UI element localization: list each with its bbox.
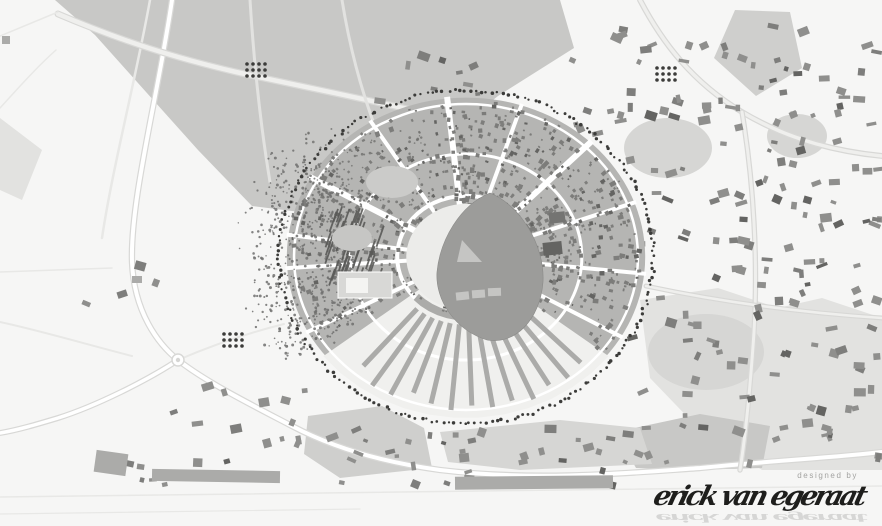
- stipple-tree: [285, 287, 287, 289]
- stipple-tree: [287, 326, 290, 329]
- ring-tree-dot: [448, 421, 450, 423]
- ring-tree-dot: [635, 322, 638, 325]
- outer-tree: [325, 144, 327, 146]
- stipple-tree: [278, 327, 281, 330]
- stipple-tree: [301, 249, 304, 252]
- ring-tree-dot: [279, 228, 282, 231]
- stipple-tree: [305, 189, 307, 191]
- stipple-tree: [323, 314, 326, 317]
- stipple-tree: [291, 260, 294, 263]
- stipple-tree: [327, 193, 329, 195]
- ring-tree-dot: [651, 250, 653, 252]
- stipple-tree: [270, 154, 272, 156]
- outer-tree: [343, 169, 345, 171]
- building: [475, 92, 480, 96]
- stipple-tree: [267, 211, 269, 213]
- ring-tree-dot: [559, 400, 562, 403]
- stipple-tree: [346, 317, 348, 319]
- city-building: [515, 115, 518, 117]
- building: [839, 95, 851, 98]
- stipple-tree: [281, 232, 283, 234]
- outer-tree: [383, 158, 385, 160]
- signature: erick van egeraat: [650, 480, 871, 512]
- ring-tree-dot: [280, 288, 282, 290]
- stipple-tree: [300, 291, 302, 293]
- ring-tree-dot: [440, 90, 443, 93]
- outer-tree: [399, 130, 401, 132]
- stipple-tree: [301, 203, 304, 206]
- stipple-tree: [320, 292, 323, 295]
- stipple-tree: [287, 352, 289, 354]
- stipple-tree: [310, 292, 313, 295]
- ring-tree-dot: [541, 406, 544, 409]
- stipple-tree: [269, 231, 271, 233]
- ring-tree-dot: [283, 213, 286, 216]
- city-building: [455, 125, 457, 127]
- ring-tree-dot: [300, 175, 304, 179]
- stipple-tree: [278, 241, 280, 243]
- ring-tree-dot: [531, 413, 534, 416]
- city-building: [579, 254, 583, 258]
- ring-tree-dot: [567, 397, 570, 400]
- tree-grid-dot: [240, 344, 244, 348]
- outer-tree: [305, 191, 306, 192]
- stipple-tree: [305, 257, 308, 260]
- outer-tree: [408, 140, 411, 143]
- stipple-tree: [238, 222, 239, 223]
- ring-tree-dot: [276, 257, 279, 260]
- stipple-tree: [277, 217, 279, 219]
- city-building: [577, 272, 579, 275]
- ring-tree-dot: [634, 331, 636, 333]
- city-building: [471, 129, 473, 131]
- ring-tree-dot: [276, 253, 279, 256]
- ring-tree-dot: [636, 326, 639, 329]
- ring-tree-dot: [516, 95, 519, 98]
- stipple-tree: [345, 224, 347, 226]
- outer-tree: [418, 132, 420, 134]
- stipple-tree: [258, 289, 260, 291]
- stipple-tree: [328, 170, 330, 172]
- city-building: [456, 127, 459, 130]
- outer-tree: [312, 183, 314, 185]
- building: [627, 88, 636, 96]
- ring-tree-dot: [284, 296, 287, 299]
- stipple-tree: [289, 324, 292, 327]
- stipple-tree: [285, 226, 287, 228]
- stipple-tree: [296, 259, 298, 261]
- city-building: [632, 250, 637, 254]
- ring-tree-dot: [303, 343, 305, 345]
- stipple-tree: [292, 224, 294, 226]
- stipple-tree: [251, 231, 253, 233]
- city-building: [396, 232, 400, 236]
- building: [576, 438, 581, 442]
- stipple-tree: [323, 190, 324, 191]
- stipple-tree: [291, 276, 293, 278]
- outer-tree: [380, 200, 382, 202]
- stipple-tree: [315, 239, 317, 241]
- stipple-tree: [276, 167, 279, 170]
- stipple-tree: [292, 232, 294, 234]
- industrial-building: [132, 276, 142, 283]
- stipple-tree: [276, 183, 279, 186]
- city-building: [447, 118, 451, 122]
- outer-tree: [416, 193, 418, 195]
- stipple-tree: [300, 347, 303, 350]
- tree-grid-dot: [655, 78, 659, 82]
- building: [820, 213, 833, 223]
- outer-tree: [369, 152, 372, 155]
- stipple-tree: [328, 258, 330, 260]
- tree-grid-dot: [240, 332, 244, 336]
- tree-grid-dot: [673, 66, 677, 70]
- ring-tree-dot: [303, 169, 306, 172]
- stipple-tree: [297, 172, 299, 174]
- stipple-tree: [296, 165, 299, 168]
- stipple-tree: [336, 291, 338, 293]
- stipple-tree: [281, 150, 283, 152]
- outer-tree: [342, 182, 344, 184]
- outer-tree: [316, 185, 318, 187]
- building: [137, 464, 145, 471]
- stipple-tree: [324, 308, 327, 311]
- stipple-tree: [275, 302, 278, 305]
- stipple-tree: [320, 269, 322, 271]
- ring-tree-dot: [469, 90, 472, 93]
- stipple-tree: [265, 192, 267, 194]
- stipple-tree: [328, 211, 330, 213]
- ring-tree-dot: [291, 319, 294, 322]
- outer-tree: [355, 148, 358, 151]
- outer-tree: [348, 160, 350, 162]
- stipple-tree: [291, 344, 294, 347]
- stipple-tree: [303, 290, 305, 292]
- stipple-tree: [310, 169, 312, 171]
- stipple-tree: [331, 333, 333, 335]
- stipple-tree: [322, 209, 324, 211]
- stipple-tree: [311, 284, 314, 287]
- ring-tree-dot: [297, 179, 299, 181]
- stipple-tree: [330, 264, 332, 266]
- building: [459, 453, 470, 463]
- stipple-tree: [299, 332, 302, 335]
- outer-tree: [412, 156, 414, 158]
- stipple-tree: [245, 307, 247, 309]
- city-building: [454, 193, 458, 196]
- city-building: [608, 269, 613, 273]
- ring-tree-dot: [628, 334, 632, 338]
- city-building: [429, 161, 432, 164]
- city-building: [415, 110, 417, 112]
- outer-tree: [351, 178, 353, 180]
- stipple-tree: [239, 248, 241, 250]
- stipple-tree: [299, 321, 301, 323]
- stipple-tree: [289, 322, 291, 324]
- city-building: [555, 235, 557, 237]
- ring-tree-dot: [294, 188, 297, 191]
- stipple-tree: [292, 285, 294, 287]
- ring-tree-dot: [295, 327, 299, 331]
- stipple-tree: [325, 281, 327, 283]
- city-building: [499, 121, 503, 124]
- ring-tree-dot: [484, 91, 487, 94]
- outer-tree: [325, 167, 328, 170]
- stipple-tree: [311, 235, 313, 237]
- stipple-tree: [315, 337, 318, 340]
- building: [819, 75, 830, 81]
- stipple-tree: [315, 211, 318, 214]
- ring-tree-dot: [652, 245, 654, 247]
- city-building: [318, 216, 322, 220]
- ring-tree-dot: [413, 417, 416, 420]
- stipple-tree: [305, 232, 307, 234]
- city-building: [461, 173, 464, 175]
- city-building: [387, 247, 390, 250]
- outer-tree: [409, 201, 410, 202]
- outer-tree: [407, 165, 409, 167]
- stipple-tree: [294, 237, 295, 238]
- outer-tree: [317, 187, 320, 190]
- city-building: [474, 171, 476, 173]
- outer-tree: [307, 204, 308, 205]
- city-building: [475, 120, 478, 122]
- stipple-tree: [273, 202, 275, 204]
- ring-tree-dot: [278, 235, 280, 237]
- stipple-tree: [253, 181, 255, 183]
- outer-tree: [305, 133, 307, 135]
- stipple-tree: [265, 265, 268, 268]
- stipple-tree: [319, 326, 322, 329]
- stipple-tree: [327, 196, 330, 199]
- stipple-tree: [327, 199, 329, 201]
- stipple-tree: [292, 213, 294, 215]
- stipple-tree: [280, 318, 282, 320]
- stipple-tree: [320, 323, 321, 324]
- ring-tree-dot: [279, 239, 281, 241]
- ring-tree-dot: [334, 134, 336, 136]
- stipple-tree: [274, 195, 276, 197]
- outer-tree: [309, 178, 311, 180]
- ring-tree-dot: [297, 182, 300, 185]
- stipple-tree: [281, 282, 283, 284]
- city-building: [482, 152, 486, 155]
- ring-tree-dot: [641, 198, 644, 201]
- outer-tree: [337, 159, 338, 160]
- stipple-tree: [321, 235, 323, 237]
- ring-tree-dot: [599, 370, 602, 373]
- stipple-tree: [285, 238, 287, 240]
- stipple-tree: [320, 289, 322, 291]
- stipple-tree: [270, 246, 272, 248]
- stipple-tree: [352, 310, 354, 312]
- building: [453, 432, 459, 437]
- stipple-tree: [325, 170, 327, 172]
- city-building: [364, 250, 369, 254]
- ring-tree-dot: [639, 319, 643, 323]
- tree-grid-dot: [263, 68, 267, 72]
- stipple-tree: [301, 192, 304, 195]
- outer-tree: [312, 141, 315, 144]
- stipple-tree: [312, 271, 314, 273]
- outer-tree: [305, 138, 307, 140]
- stipple-tree: [292, 308, 294, 310]
- stipple-tree: [275, 213, 278, 216]
- park-clearing: [472, 290, 486, 299]
- city-building: [470, 167, 475, 173]
- city-building: [495, 114, 498, 117]
- ring-tree-dot: [338, 379, 340, 381]
- building: [739, 217, 747, 223]
- stipple-tree: [299, 283, 301, 285]
- ring-tree-dot: [348, 385, 352, 389]
- stipple-tree: [284, 282, 285, 283]
- stipple-tree: [277, 320, 279, 322]
- city-building: [443, 161, 445, 164]
- outer-tree: [302, 161, 304, 163]
- outer-tree: [341, 178, 343, 180]
- city-building: [381, 248, 384, 251]
- outer-tree: [342, 161, 344, 163]
- ring-tree-dot: [646, 303, 648, 305]
- ring-tree-dot: [563, 397, 566, 400]
- building: [777, 157, 786, 166]
- building: [628, 103, 633, 112]
- housing-finger: [469, 325, 472, 406]
- city-building: [599, 224, 602, 227]
- outer-tree: [315, 165, 317, 167]
- ring-tree-dot: [341, 132, 344, 135]
- ring-tree-dot: [648, 228, 652, 232]
- ring-tree-dot: [443, 421, 446, 424]
- stipple-tree: [295, 318, 297, 320]
- ring-tree-dot: [386, 405, 389, 408]
- stipple-tree: [261, 311, 263, 313]
- building: [682, 391, 693, 397]
- outer-tree: [395, 200, 398, 203]
- stipple-tree: [331, 258, 334, 261]
- city-building: [487, 147, 490, 150]
- stipple-tree: [336, 175, 338, 177]
- stipple-tree: [288, 315, 289, 316]
- stipple-tree: [287, 275, 288, 276]
- city-building: [478, 147, 480, 149]
- building: [729, 237, 738, 243]
- city-building: [445, 138, 449, 141]
- stipple-tree: [317, 208, 319, 210]
- ring-tree-dot: [607, 147, 610, 150]
- city-building: [341, 261, 343, 263]
- ring-tree-dot: [564, 112, 567, 115]
- ring-tree-dot: [615, 354, 618, 357]
- outer-tree: [358, 147, 360, 149]
- stipple-tree: [284, 283, 286, 285]
- signature-group: erick van egeraat erick van egeraat: [650, 480, 871, 525]
- stipple-tree: [275, 187, 277, 189]
- city-building: [498, 116, 501, 120]
- stipple-tree: [311, 335, 313, 337]
- ring-tree-dot: [491, 91, 495, 95]
- stipple-tree: [298, 248, 301, 251]
- ring-tree-dot: [593, 132, 596, 135]
- city-building: [504, 119, 506, 121]
- outer-tree: [318, 152, 319, 153]
- stipple-tree: [281, 212, 284, 215]
- tree-grid-dot: [655, 72, 659, 76]
- stipple-tree: [274, 208, 277, 211]
- ring-tree-dot: [319, 149, 321, 151]
- city-building: [461, 198, 465, 204]
- outer-tree: [333, 170, 335, 172]
- stipple-tree: [352, 257, 354, 259]
- stipple-tree: [349, 301, 352, 304]
- tree-grid-dot: [257, 68, 261, 72]
- stipple-tree: [293, 296, 296, 299]
- city-building: [458, 161, 461, 165]
- stipple-tree: [319, 191, 321, 193]
- city-building: [492, 105, 497, 109]
- stipple-tree: [289, 330, 292, 333]
- stipple-tree: [252, 252, 255, 255]
- city-building: [482, 173, 484, 175]
- stipple-tree: [330, 221, 331, 222]
- ring-tree-dot: [432, 91, 435, 94]
- stipple-tree: [307, 190, 309, 192]
- outer-tree: [424, 143, 426, 145]
- stipple-tree: [334, 322, 336, 324]
- tree-grid-dot: [245, 74, 249, 78]
- building: [683, 413, 688, 418]
- ring-tree-dot: [464, 422, 467, 425]
- building: [427, 432, 432, 439]
- masterplan-map: designed by erick van egeraat erick van …: [0, 0, 882, 526]
- outer-tree: [331, 151, 333, 153]
- stipple-tree: [265, 304, 267, 306]
- stipple-tree: [322, 207, 324, 209]
- stipple-tree: [343, 206, 345, 208]
- roundabout-center: [176, 358, 180, 362]
- stipple-tree: [303, 217, 306, 220]
- stipple-tree: [280, 265, 282, 267]
- building: [854, 388, 866, 396]
- stipple-tree: [299, 317, 301, 319]
- stipple-tree: [312, 222, 314, 224]
- industrial-building: [152, 469, 280, 483]
- outer-tree: [417, 138, 420, 141]
- outer-tree: [419, 178, 421, 180]
- stipple-tree: [302, 251, 305, 254]
- stipple-tree: [331, 309, 333, 311]
- stipple-tree: [278, 203, 281, 206]
- stipple-tree: [314, 247, 316, 249]
- building: [863, 168, 873, 175]
- light-block-2: [332, 225, 372, 251]
- ring-tree-dot: [595, 374, 597, 376]
- stipple-tree: [277, 341, 279, 343]
- ring-tree-dot: [332, 371, 336, 375]
- stipple-tree: [259, 295, 262, 298]
- city-building: [570, 236, 574, 240]
- tree-grid-dot: [661, 78, 665, 82]
- outer-tree: [420, 183, 423, 186]
- stipple-tree: [285, 201, 287, 203]
- building: [640, 46, 652, 54]
- stipple-tree: [359, 199, 362, 202]
- outer-tree: [363, 153, 365, 155]
- stipple-tree: [295, 341, 297, 343]
- outer-tree: [409, 204, 411, 206]
- ring-tree-dot: [650, 276, 654, 280]
